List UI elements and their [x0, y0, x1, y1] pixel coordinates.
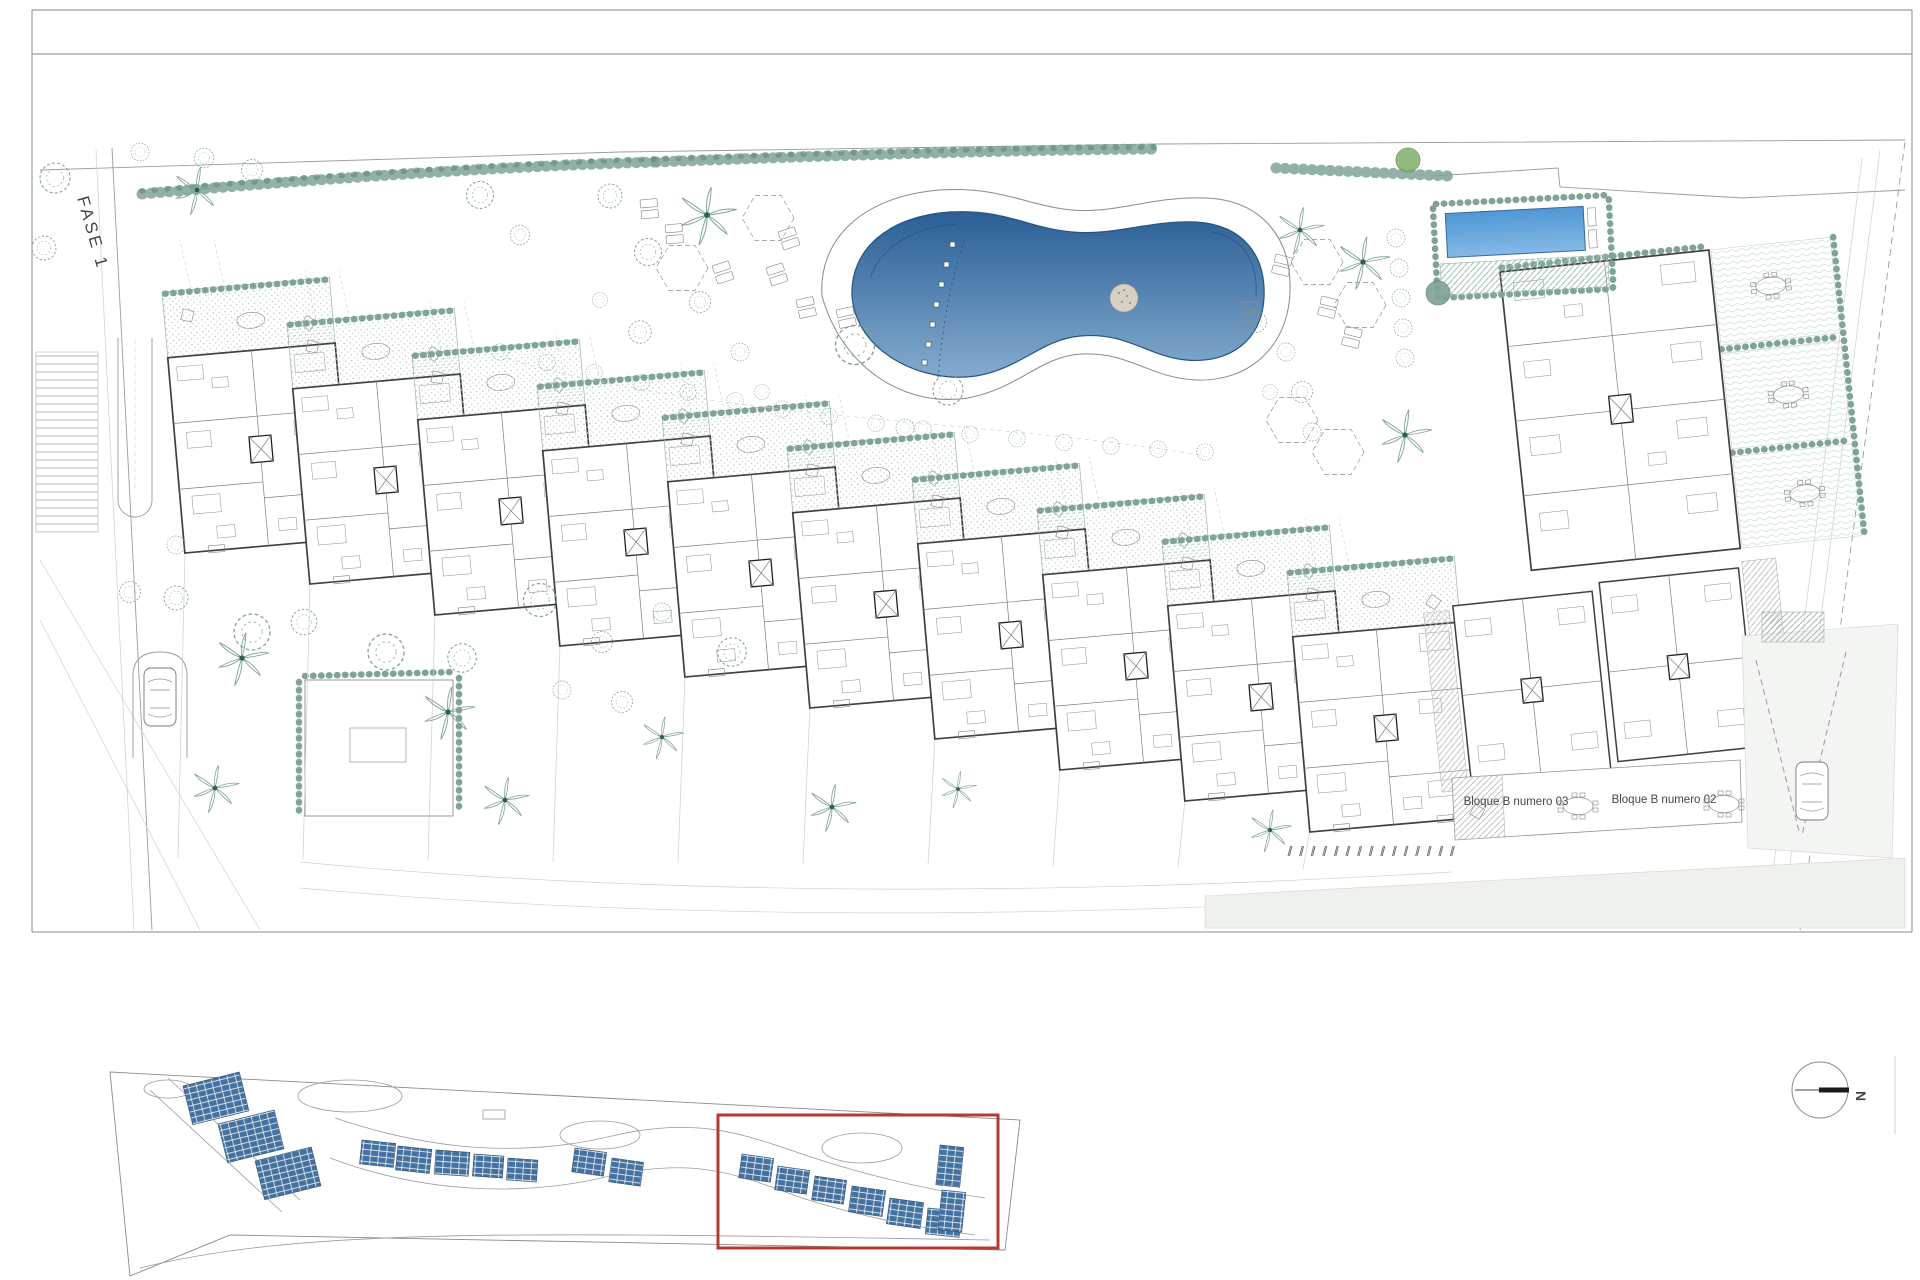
- roof-block: [739, 1154, 774, 1182]
- roof-block: [775, 1166, 810, 1194]
- roof-block: [812, 1176, 847, 1204]
- roof-block: [886, 1198, 923, 1228]
- roof-block: [936, 1145, 964, 1187]
- bloque-b-label-03: Bloque B numero 03: [1464, 796, 1569, 808]
- roof-block: [572, 1148, 607, 1176]
- roof-block: [938, 1190, 966, 1232]
- north-label: N: [1853, 1091, 1869, 1101]
- parked-car-icon: [1796, 762, 1828, 820]
- solid-tree-icon: [1426, 281, 1450, 305]
- roof-block: [472, 1154, 503, 1178]
- roof-block: [609, 1158, 644, 1186]
- roof-block: [506, 1158, 537, 1182]
- roof-block: [359, 1140, 395, 1167]
- roof-block: [848, 1186, 885, 1216]
- pool-island: [1110, 284, 1138, 312]
- plaza: [299, 672, 459, 816]
- roof-block: [434, 1150, 470, 1176]
- green-tree-icon: [1396, 148, 1420, 172]
- site-plan-sheet: Bloque B numero 03 Bloque B numero 02 FA…: [0, 0, 1920, 1280]
- roof-block: [395, 1146, 431, 1173]
- parked-car-icon: [144, 668, 176, 726]
- bloque-b-label-02: Bloque B numero 02: [1612, 794, 1717, 806]
